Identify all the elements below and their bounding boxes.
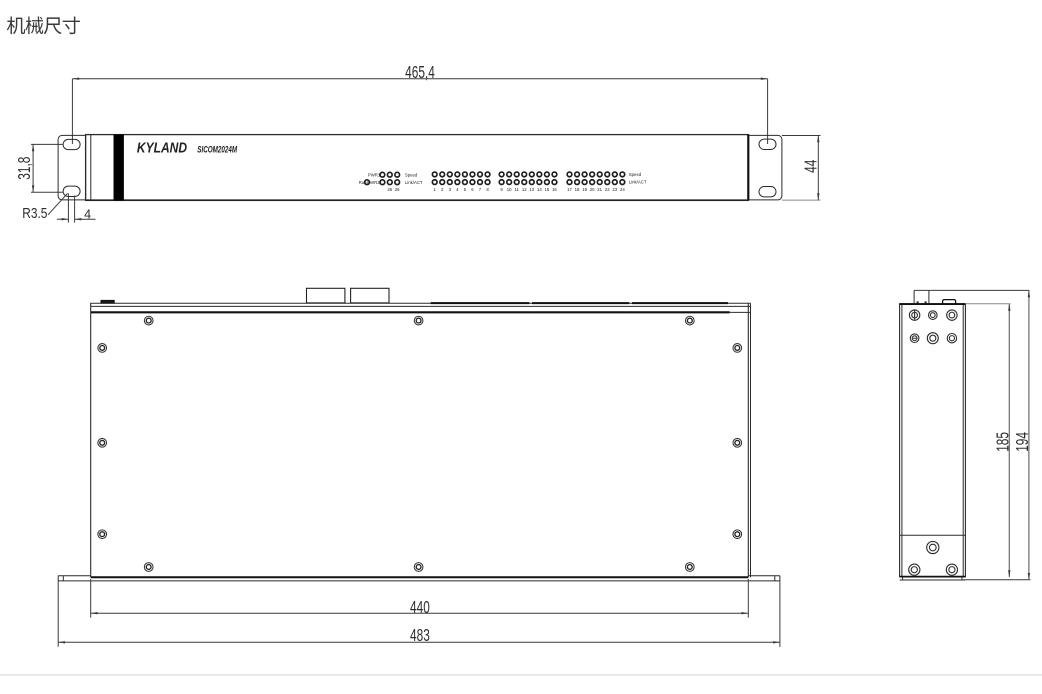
svg-text:9: 9 (500, 187, 503, 192)
svg-text:17: 17 (567, 187, 572, 192)
svg-text:Speed: Speed (405, 172, 418, 177)
svg-text:185: 185 (992, 432, 1012, 452)
svg-text:21: 21 (597, 187, 602, 192)
svg-text:KYLAND: KYLAND (137, 140, 188, 156)
svg-text:19: 19 (582, 187, 587, 192)
svg-text:PWR1: PWR1 (368, 172, 381, 177)
svg-text:PWR2: PWR2 (367, 180, 380, 185)
svg-text:7: 7 (479, 187, 482, 192)
svg-text:Link/ACT: Link/ACT (405, 180, 423, 185)
svg-text:44: 44 (801, 160, 821, 173)
svg-text:465,4: 465,4 (405, 62, 435, 82)
svg-text:22: 22 (605, 187, 610, 192)
svg-text:20: 20 (590, 187, 595, 192)
svg-text:14: 14 (537, 187, 542, 192)
svg-text:4: 4 (84, 208, 91, 222)
svg-text:440: 440 (410, 597, 430, 617)
svg-text:SICOM2024M: SICOM2024M (197, 144, 237, 154)
svg-text:11: 11 (514, 187, 519, 192)
svg-text:13: 13 (529, 187, 534, 192)
svg-text:16: 16 (552, 187, 557, 192)
svg-text:3: 3 (449, 187, 452, 192)
svg-text:1: 1 (434, 187, 437, 192)
svg-text:15: 15 (545, 187, 550, 192)
svg-text:194: 194 (1012, 432, 1032, 452)
svg-text:24: 24 (620, 187, 625, 192)
svg-text:23: 23 (612, 187, 617, 192)
svg-text:Run: Run (359, 180, 367, 185)
svg-text:8: 8 (486, 187, 489, 192)
svg-text:6: 6 (471, 187, 474, 192)
svg-text:Link/ACT: Link/ACT (629, 180, 647, 185)
svg-text:Speed: Speed (629, 172, 642, 177)
svg-text:2: 2 (441, 187, 444, 192)
svg-text:25: 25 (387, 187, 392, 192)
svg-text:18: 18 (575, 187, 580, 192)
svg-text:31,8: 31,8 (14, 157, 34, 180)
svg-text:26: 26 (395, 187, 400, 192)
svg-text:5: 5 (464, 187, 467, 192)
svg-text:R3.5: R3.5 (22, 206, 47, 222)
svg-text:4: 4 (456, 187, 459, 192)
svg-text:10: 10 (507, 187, 512, 192)
svg-text:12: 12 (522, 187, 527, 192)
svg-text:483: 483 (410, 625, 430, 645)
